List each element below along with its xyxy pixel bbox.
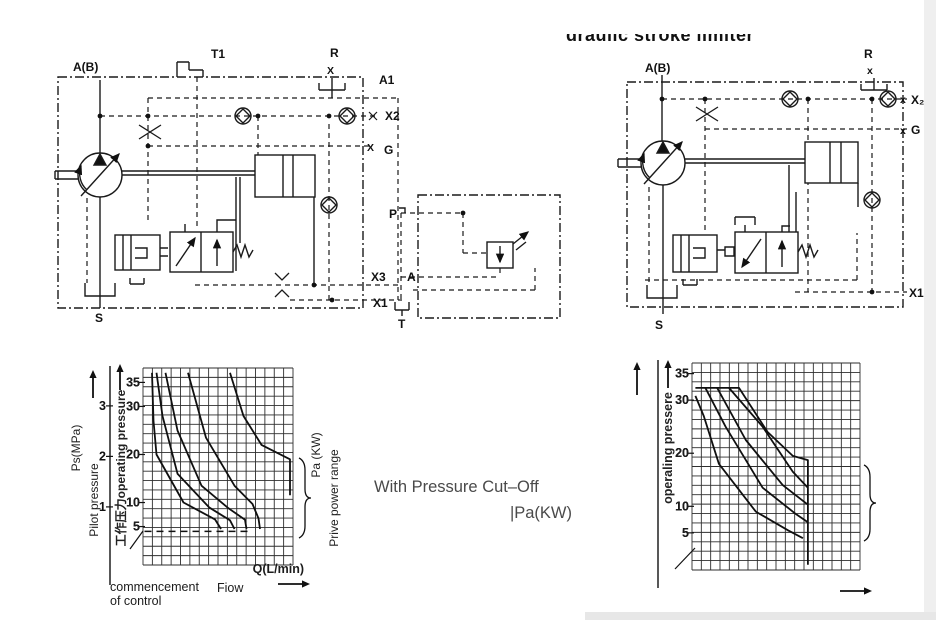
port-label-t1: T1 xyxy=(211,47,225,61)
port-label-r: R xyxy=(864,47,873,61)
commencement-mark xyxy=(130,531,143,549)
port-label-x3: X3 xyxy=(371,270,386,284)
right-circuit-diagram: A(B) R x x X₂ x G X1 S xyxy=(585,42,935,342)
variable-pump-symbol xyxy=(618,75,685,314)
port-label-x2: X2 xyxy=(385,109,400,123)
tick-label: 35 xyxy=(675,367,689,381)
port-label-s: S xyxy=(655,318,663,332)
tick-label: 10 xyxy=(675,499,689,513)
pilot-piston-block xyxy=(673,235,734,285)
tick-label: 2 xyxy=(99,449,106,463)
port-p-tick xyxy=(399,208,405,213)
port-label-g: G xyxy=(384,143,393,157)
scan-artifact-bottom-band xyxy=(585,612,936,620)
port-label-ab: A(B) xyxy=(645,61,670,75)
tick-label: 5 xyxy=(133,520,140,534)
junction-dots xyxy=(98,114,335,303)
right-performance-chart: 353020105353020105operaling pressere xyxy=(620,348,936,620)
directional-valve xyxy=(735,217,818,273)
grid xyxy=(143,368,293,565)
scanned-page: A(B) T1 R X A1 X2 X G X3 X1 S P A T drau… xyxy=(0,0,936,620)
tick-label: 30 xyxy=(675,393,689,407)
port-t-symbol xyxy=(395,302,409,316)
right-label-unit: Pa (KW) xyxy=(309,432,323,477)
ylabel-outer-unit: Ps(MPa) xyxy=(69,425,83,472)
throttle-valve-icon xyxy=(139,125,161,139)
throttle-valve-icon xyxy=(696,107,718,121)
grid xyxy=(692,363,860,570)
range-brace xyxy=(864,465,876,541)
tick-label: 20 xyxy=(126,447,140,461)
port-label-r: R xyxy=(330,46,339,60)
tick-label: 3 xyxy=(99,399,106,413)
left-performance-chart: 353020105353020105321Ps(MPa)Pilot pressu… xyxy=(68,350,368,616)
port-label-p: P xyxy=(389,207,397,221)
ylabel-inner: 工作压力operating pressure xyxy=(113,389,128,546)
port-label-g-x: x xyxy=(900,125,906,137)
suction-port-bracket xyxy=(647,285,677,298)
tick-label: 35 xyxy=(126,375,140,389)
x-axis-sublabel: Fiow xyxy=(217,581,244,595)
caption-line2: |Pa(KW) xyxy=(374,500,574,526)
figure-caption: With Pressure Cut–Off |Pa(KW) xyxy=(374,474,574,527)
ylabel-inner: operaling pressere xyxy=(661,392,675,504)
port-label-r-x: x xyxy=(867,65,873,77)
stroking-cylinder xyxy=(685,142,858,207)
port-label-x1: X1 xyxy=(909,286,924,300)
tick-label: 10 xyxy=(126,496,140,510)
right-label: Prive power range xyxy=(327,449,341,547)
tick-label: 20 xyxy=(675,446,689,460)
port-r-symbol xyxy=(319,78,345,98)
port-label-ab: A(B) xyxy=(73,60,98,74)
feedback-lever xyxy=(236,177,240,271)
port-label-a: A xyxy=(407,270,416,284)
x-axis-annotation: commencement xyxy=(110,580,199,594)
port-label-t: T xyxy=(398,317,406,331)
port-label-s: S xyxy=(95,311,103,325)
ylabel-outer: Pilot pressure xyxy=(87,463,101,537)
port-label-g-x: X xyxy=(367,142,374,154)
left-circuit-diagram: A(B) T1 R X A1 X2 X G X3 X1 S P A T xyxy=(35,38,575,338)
power-curve-4 xyxy=(729,388,808,488)
tick-label: 30 xyxy=(126,399,140,413)
port-label-a1: A1 xyxy=(379,73,395,87)
variable-pump-symbol xyxy=(55,80,122,308)
pilot-piston-block xyxy=(115,235,168,284)
port-label-x2: X₂ xyxy=(911,93,924,107)
scan-artifact-right-edge xyxy=(924,0,936,620)
drain-port-t1-symbol xyxy=(177,62,203,77)
port-label-r-x: X xyxy=(327,65,334,77)
port-label-x2-x: x xyxy=(900,94,906,106)
tick-label: 5 xyxy=(682,526,689,540)
x-axis-annotation: of control xyxy=(110,594,161,608)
port-r-symbol xyxy=(861,78,887,90)
relief-valve-icon xyxy=(487,232,528,268)
caption-line1: With Pressure Cut–Off xyxy=(374,474,574,500)
port-label-g: G xyxy=(911,123,920,137)
port-label-x1: X1 xyxy=(373,296,388,310)
outer-tick-labels: 321 xyxy=(99,399,113,514)
x-axis-label: Q(L/min) xyxy=(253,562,304,576)
pressure-cutoff-box xyxy=(395,195,560,318)
